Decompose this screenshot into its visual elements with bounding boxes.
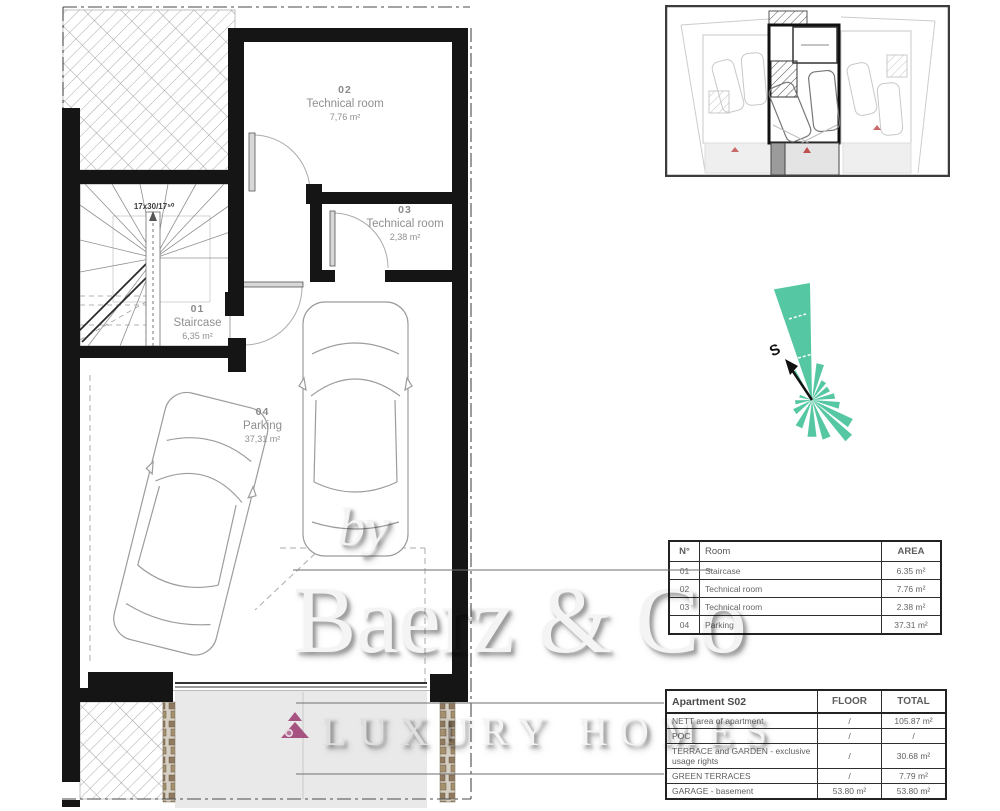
cell-area: 7.76 m² bbox=[882, 580, 942, 598]
room-schedule-table: N° Room AREA 01 Staircase 6.35 m² 02 Tec… bbox=[668, 540, 942, 635]
room-label-01: 01 Staircase 6,35 m² bbox=[150, 303, 245, 342]
cell-total: 53.80 m² bbox=[882, 784, 947, 800]
room-name: Parking bbox=[215, 419, 310, 433]
table-row: 02 Technical room 7.76 m² bbox=[669, 580, 941, 598]
cell-room: Staircase bbox=[700, 562, 882, 580]
table-row: TERRACE and GARDEN - exclusive usage rig… bbox=[666, 744, 946, 769]
stair-dimension-note: 17x30/17⁵⁰ bbox=[116, 202, 192, 211]
col-header-room: Room bbox=[700, 541, 882, 562]
col-header-num: N° bbox=[669, 541, 700, 562]
col-header-floor: FLOOR bbox=[818, 690, 882, 713]
room-label-03: 03 Technical room 2,38 m² bbox=[345, 204, 465, 243]
room-label-04: 04 Parking 37,31 m² bbox=[215, 406, 310, 445]
room-area: 37,31 m² bbox=[215, 434, 310, 445]
cell-floor: / bbox=[818, 744, 882, 769]
cell-num: 02 bbox=[669, 580, 700, 598]
wind-rose-wedges bbox=[774, 283, 853, 441]
apartment-summary-table: Apartment S02 FLOOR TOTAL NETT area of a… bbox=[665, 689, 947, 800]
table-row: 03 Technical room 2.38 m² bbox=[669, 598, 941, 616]
cell-area: 37.31 m² bbox=[882, 616, 942, 635]
stone-wall-left bbox=[163, 702, 175, 802]
floorplan-page: 02 Technical room 7,76 m² 03 Technical r… bbox=[0, 0, 1000, 811]
room-name: Staircase bbox=[150, 316, 245, 330]
cell-label: POC bbox=[666, 729, 818, 744]
cell-floor: 53.80 m² bbox=[818, 784, 882, 800]
cell-num: 04 bbox=[669, 616, 700, 635]
cell-room: Technical room bbox=[700, 598, 882, 616]
cell-area: 2.38 m² bbox=[882, 598, 942, 616]
room-name: Technical room bbox=[280, 97, 410, 111]
table-row: 04 Parking 37.31 m² bbox=[669, 616, 941, 635]
cell-total: 105.87 m² bbox=[882, 713, 947, 729]
cell-floor: / bbox=[818, 713, 882, 729]
room-label-02: 02 Technical room 7,76 m² bbox=[280, 84, 410, 123]
room-number: 03 bbox=[345, 204, 465, 217]
table-row: GARAGE - basement 53.80 m² 53.80 m² bbox=[666, 784, 946, 800]
baerz-logo-icon bbox=[278, 712, 312, 742]
cell-total: / bbox=[882, 729, 947, 744]
table-row: 01 Staircase 6.35 m² bbox=[669, 562, 941, 580]
table-row: GREEN TERRACES / 7.79 m² bbox=[666, 769, 946, 784]
cell-room: Parking bbox=[700, 616, 882, 635]
cell-area: 6.35 m² bbox=[882, 562, 942, 580]
room-number: 02 bbox=[280, 84, 410, 97]
table-row: NETT area of apartment / 105.87 m² bbox=[666, 713, 946, 729]
cell-num: 03 bbox=[669, 598, 700, 616]
cell-label: NETT area of apartment bbox=[666, 713, 818, 729]
wind-rose bbox=[750, 263, 875, 468]
cell-total: 7.79 m² bbox=[882, 769, 947, 784]
apartment-table-header: Apartment S02 FLOOR TOTAL bbox=[666, 690, 946, 713]
cell-floor: / bbox=[818, 769, 882, 784]
room-table-header: N° Room AREA bbox=[669, 541, 941, 562]
highlighted-unit bbox=[767, 11, 840, 175]
col-header-total: TOTAL bbox=[882, 690, 947, 713]
cell-floor: / bbox=[818, 729, 882, 744]
room-area: 7,76 m² bbox=[280, 112, 410, 123]
apartment-title: Apartment S02 bbox=[666, 690, 818, 713]
cell-total: 30.68 m² bbox=[882, 744, 947, 769]
cell-num: 01 bbox=[669, 562, 700, 580]
room-name: Technical room bbox=[345, 217, 465, 231]
stone-wall-right bbox=[440, 702, 455, 802]
col-header-area: AREA bbox=[882, 541, 942, 562]
room-area: 6,35 m² bbox=[150, 331, 245, 342]
cell-room: Technical room bbox=[700, 580, 882, 598]
room-number: 01 bbox=[150, 303, 245, 316]
cell-label: TERRACE and GARDEN - exclusive usage rig… bbox=[666, 744, 818, 769]
cell-label: GARAGE - basement bbox=[666, 784, 818, 800]
room-number: 04 bbox=[215, 406, 310, 419]
driveway bbox=[175, 690, 427, 808]
cell-label: GREEN TERRACES bbox=[666, 769, 818, 784]
room-area: 2,38 m² bbox=[345, 232, 465, 243]
site-plan-inset bbox=[665, 5, 950, 177]
table-row: POC / / bbox=[666, 729, 946, 744]
